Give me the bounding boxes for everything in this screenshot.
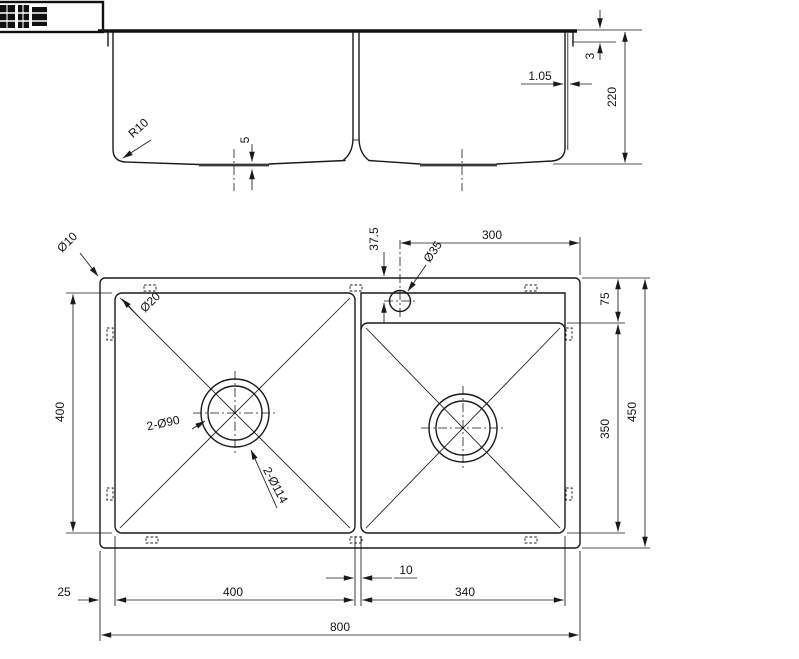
dim-faucet-span-label: 300 xyxy=(482,228,502,242)
logo-glyphs xyxy=(0,5,47,28)
dim-right-bowl-length: 350 xyxy=(598,325,618,532)
dim-depth-label: 220 xyxy=(605,87,619,107)
dim-rim-gauge: 1.05 xyxy=(521,69,592,84)
dim-right-bowl-length-label: 350 xyxy=(598,419,612,439)
dim-recess-depth-label: 5 xyxy=(238,136,252,143)
right-bowl-floor xyxy=(369,161,420,165)
drain-flange-label: 2-Ø114 xyxy=(260,465,291,506)
dim-recess-depth: 5 xyxy=(238,136,252,190)
dim-faucet-offset-label: 37.5 xyxy=(367,227,381,251)
dim-ledge-height: 75 xyxy=(598,280,618,322)
plan-view: Ø10 Ø20 37.5 300 Ø35 75 350 xyxy=(53,227,650,641)
label-outer-corner: Ø10 xyxy=(54,229,98,276)
dim-overall-length: 450 xyxy=(625,280,645,547)
dim-left-bowl-width: 400 xyxy=(117,585,354,600)
label-drain-flange: 2-Ø114 xyxy=(251,450,291,508)
dim-left-bowl-length: 400 xyxy=(53,295,73,532)
side-view-outline xyxy=(98,30,642,191)
left-bowl-floor xyxy=(269,161,345,165)
corner-radius-label: R10 xyxy=(125,115,151,140)
drawing-sheet: 5 R10 3 1.05 220 xyxy=(0,0,799,659)
dim-bowl-gap-label: 10 xyxy=(399,563,413,577)
dim-edge-margin-label: 25 xyxy=(57,585,71,599)
dim-left-bowl-length-label: 400 xyxy=(53,402,67,422)
dim-edge-margin: 25 xyxy=(57,585,98,600)
divider-right xyxy=(359,33,369,161)
label-corner-radius: R10 xyxy=(123,115,151,158)
dim-depth: 220 xyxy=(605,32,625,163)
sink-outer-rim xyxy=(100,278,580,548)
drain-hole-label: 2-Ø90 xyxy=(145,413,181,434)
outer-corner-label: Ø10 xyxy=(54,229,80,255)
dim-left-bowl-width-label: 400 xyxy=(223,585,243,599)
dim-overall-length-label: 450 xyxy=(625,402,639,422)
dim-rim-gauge-label: 1.05 xyxy=(528,69,552,83)
dim-rim-height: 3 xyxy=(583,10,600,60)
left-bowl-wall xyxy=(113,33,199,165)
faucet-hole-label: Ø35 xyxy=(420,238,445,265)
dim-faucet-offset: 37.5 xyxy=(367,227,384,323)
dim-bowl-gap: 10 xyxy=(326,563,417,578)
dim-ledge-height-label: 75 xyxy=(598,292,612,306)
dim-faucet-span: 300 xyxy=(401,228,579,243)
dim-rim-height-label: 3 xyxy=(583,52,597,59)
divider-left xyxy=(343,33,353,161)
logo-frame xyxy=(0,2,103,32)
dim-overall-width: 800 xyxy=(102,620,579,635)
dim-right-bowl-width: 340 xyxy=(363,585,564,600)
technical-drawing: 5 R10 3 1.05 220 xyxy=(0,0,799,659)
right-bowl-wall xyxy=(497,33,565,164)
label-drain-hole: 2-Ø90 xyxy=(145,413,205,434)
logo-stamp xyxy=(0,2,103,32)
dim-right-bowl-width-label: 340 xyxy=(455,585,475,599)
side-view: 5 R10 3 1.05 220 xyxy=(98,10,642,191)
dim-overall-width-label: 800 xyxy=(330,620,350,634)
label-faucet-hole: Ø35 xyxy=(408,238,445,291)
